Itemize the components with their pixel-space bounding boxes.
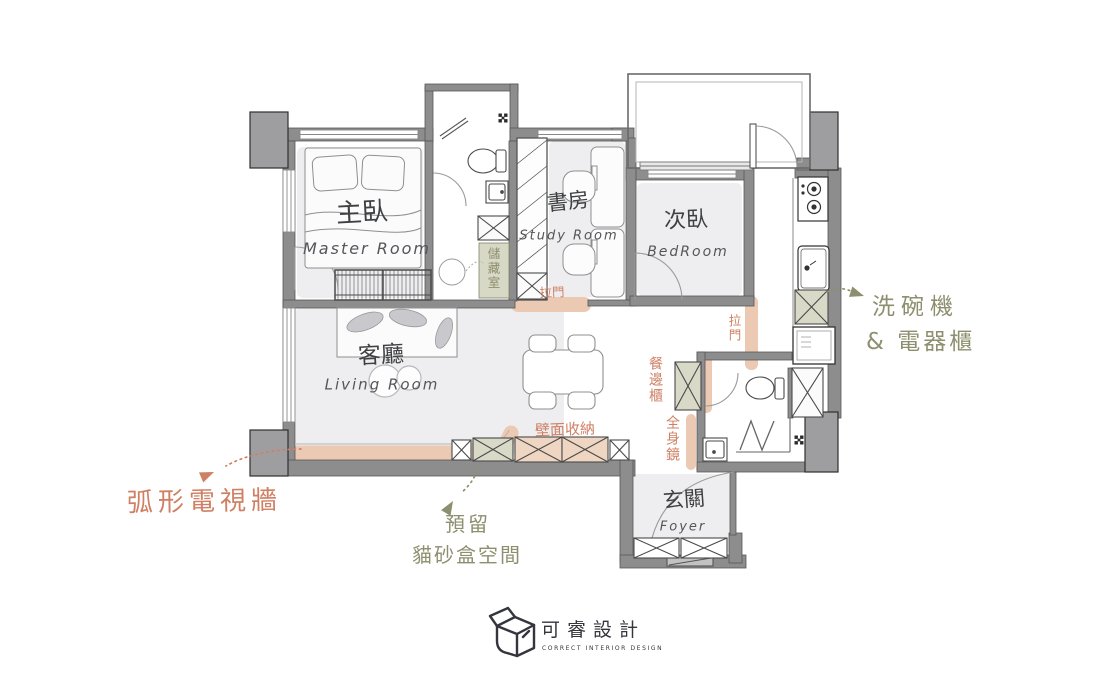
cabinet-box [517,273,547,299]
storage-room-box [479,243,509,298]
window-left-master [283,170,295,232]
column-top-right [810,112,838,170]
window-left-living [283,308,295,422]
cabinet-box [610,440,629,460]
window-top-study [538,130,622,139]
toilet-icon [468,149,506,173]
window-top-bedroom [648,170,736,178]
sideboard-cabinet [675,362,701,410]
utility-door [440,118,468,139]
dishwasher-cabinet [795,290,828,324]
cabinet-box [478,216,509,240]
stove-icon [798,177,828,221]
sink-icon [703,438,727,461]
sink-icon [486,181,508,203]
rug-icon [337,306,457,357]
cat-litter-cabinet [473,438,513,461]
bathroom1-fixtures [468,149,508,203]
window-top-master [300,130,418,139]
cabinet-box [452,440,471,460]
bathroom1-door [433,173,466,206]
floor-plan-drawing [0,0,1100,684]
desk-chair-icon [563,244,595,275]
column-right-lower [805,412,838,472]
mirror-highlight [686,414,696,470]
shower-icon [736,418,790,452]
bed-icon [305,148,421,268]
balcony-door [750,124,797,168]
logo-cube-icon [490,608,534,656]
storage-stool [439,259,483,285]
fridge-icon [793,327,835,364]
cabinet-box [792,368,823,417]
column-bottom-left [250,430,288,476]
bathroom2-fixtures [703,377,790,461]
shoe-cabinet [681,538,727,558]
toilet-icon [746,377,784,399]
wall-storage-cabinet [562,437,608,462]
wardrobe-icon [335,270,431,300]
balcony-rail [640,162,752,170]
balcony [628,74,810,170]
shoe-cabinet [634,538,679,558]
column-top-left [250,112,288,168]
wall-storage-cabinet [515,437,562,462]
floor-plan-canvas: 主臥 Master Room 書房 Study Room 次臥 BedRoom … [0,0,1100,684]
kitchen-sink-icon [798,246,829,291]
desk-chair-icon [563,171,595,202]
